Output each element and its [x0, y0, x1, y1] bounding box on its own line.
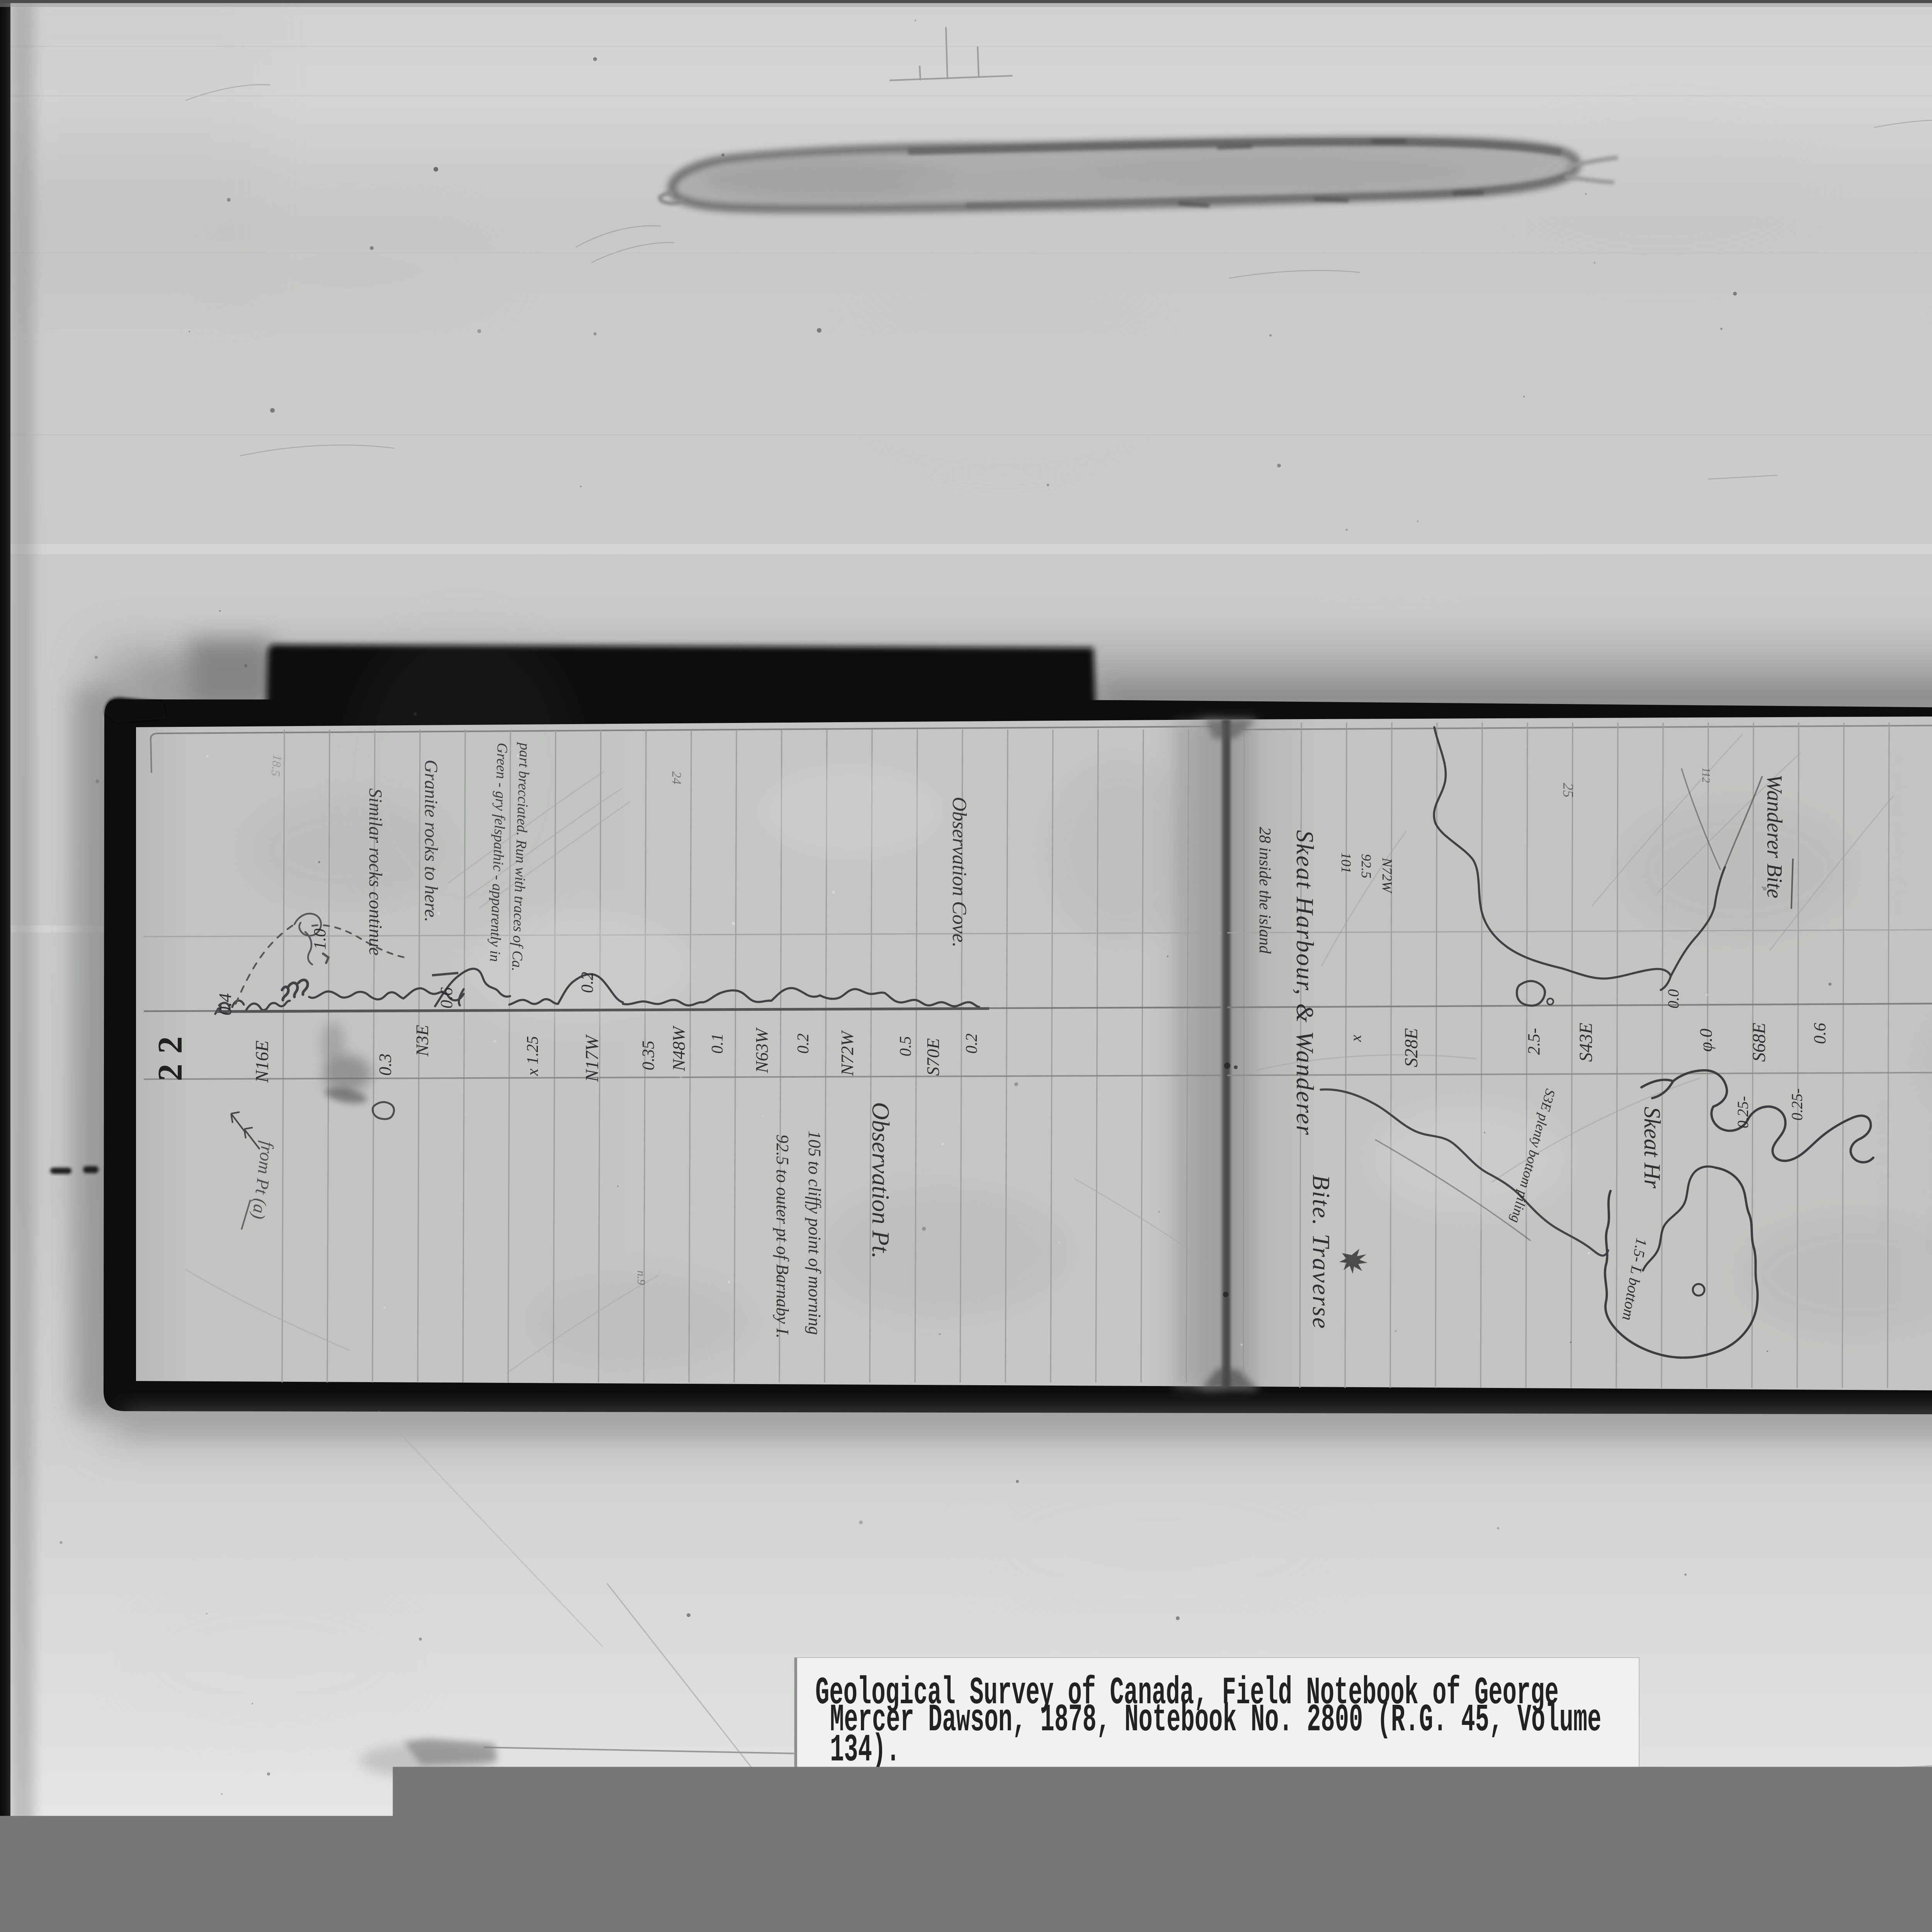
svg-text:N17W: N17W	[582, 1034, 602, 1082]
svg-text:1.0: 1.0	[310, 929, 329, 950]
svg-text:0.1: 0.1	[709, 1034, 726, 1054]
svg-text:92.5 to outer pt of Barnaby I.: 92.5 to outer pt of Barnaby I.	[773, 1134, 792, 1338]
svg-text:S28E: S28E	[1401, 1028, 1422, 1067]
svg-text:n.9: n.9	[635, 1270, 648, 1285]
svg-text:Mercer Dawson, 1878, Notebook: Mercer Dawson, 1878, Notebook No. 2800 (…	[830, 1698, 1601, 1742]
svg-text:x 1.25: x 1.25	[524, 1036, 542, 1076]
svg-text:Observation Cove.: Observation Cove.	[948, 797, 970, 947]
svg-text:beach at low tide: beach at low tide	[1874, 1101, 1895, 1234]
svg-text:0.3: 0.3	[375, 1054, 395, 1076]
svg-text:Observation Pt.: Observation Pt.	[867, 1102, 895, 1259]
svg-text:S68E: S68E	[1749, 1023, 1769, 1062]
svg-text:0.6: 0.6	[437, 987, 456, 1009]
svg-text:S43E: S43E	[1576, 1023, 1596, 1062]
svg-text:N48W: N48W	[669, 1025, 689, 1071]
svg-text:N3E: N3E	[412, 1025, 432, 1057]
svg-text:0.5: 0.5	[897, 1036, 915, 1057]
svg-text:ARCHIVES: ARCHIVES	[1196, 1859, 1597, 1932]
svg-text:n. along shore of low: n. along shore of low	[1889, 753, 1911, 917]
svg-text:0.6: 0.6	[1810, 1023, 1829, 1044]
svg-text:0.2: 0.2	[794, 1034, 812, 1054]
svg-text:with many stones: with many stones	[1924, 1121, 1932, 1253]
svg-text:N16E: N16E	[252, 1041, 272, 1083]
svg-text:φ.0: φ.0	[1696, 1029, 1716, 1052]
svg-text:134).: 134).	[830, 1728, 900, 1772]
svg-text:N72W: N72W	[1379, 857, 1395, 894]
svg-text:0.2: 0.2	[578, 972, 597, 993]
svg-text:101: 101	[1338, 852, 1354, 873]
svg-text:Bite. Traverse: Bite. Traverse	[1308, 1175, 1335, 1330]
svg-text:24: 24	[669, 771, 684, 784]
svg-text:28 inside the island: 28 inside the island	[1256, 827, 1274, 954]
svg-text:PUBLIC: PUBLIC	[855, 1859, 1131, 1932]
svg-text:18.5: 18.5	[269, 754, 285, 777]
svg-text:22: 22	[151, 1026, 189, 1081]
svg-text:112: 112	[1700, 767, 1712, 783]
svg-text:x: x	[1347, 1035, 1364, 1042]
svg-text:0.25-: 0.25-	[1788, 1088, 1806, 1121]
svg-text:25: 25	[1560, 783, 1576, 798]
svg-text:N72W: N72W	[837, 1030, 857, 1076]
svg-text:92.5: 92.5	[1359, 854, 1374, 878]
svg-text:N63W: N63W	[752, 1027, 772, 1073]
svg-text:0.35: 0.35	[639, 1041, 658, 1070]
svg-text:S70E: S70E	[923, 1038, 943, 1076]
svg-text:Wanderer Bite: Wanderer Bite	[1762, 774, 1786, 898]
svg-text:Skeat Harbour, & Wanderer: Skeat Harbour, & Wanderer	[1291, 830, 1319, 1136]
svg-text:0.4: 0.4	[215, 993, 235, 1016]
svg-text:0.0: 0.0	[1665, 989, 1682, 1009]
svg-text:2.5-: 2.5-	[1524, 1028, 1543, 1055]
svg-text:0.2: 0.2	[963, 1034, 981, 1054]
svg-text:105 to cliffy point of morning: 105 to cliffy point of morning	[805, 1131, 824, 1335]
svg-text:Skeat Hr: Skeat Hr	[1639, 1107, 1665, 1189]
svg-text:0.25-: 0.25-	[1734, 1096, 1752, 1128]
